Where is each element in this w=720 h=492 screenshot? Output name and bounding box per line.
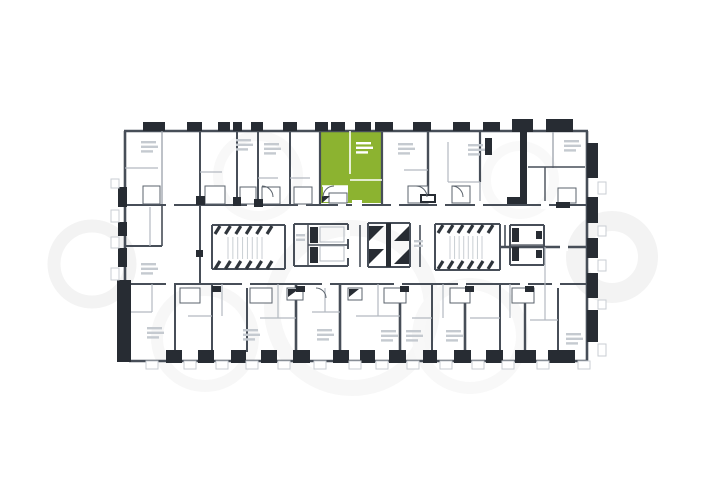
- unit-info-label: [468, 153, 480, 155]
- unit-info-label: [398, 148, 415, 150]
- fixture: [587, 143, 598, 178]
- fixture: [261, 350, 277, 363]
- fixture: [166, 280, 174, 288]
- 6: [438, 261, 443, 269]
- fixture: [598, 300, 606, 309]
- watermark-ring: [157, 290, 253, 386]
- fixture: [386, 223, 391, 267]
- fixture: [322, 280, 330, 288]
- fixture: [375, 122, 393, 131]
- fixture: [240, 187, 256, 204]
- fixture: [536, 250, 542, 258]
- fixture: [315, 122, 328, 131]
- unit-info-label: [147, 336, 159, 338]
- fixture: [118, 222, 127, 236]
- fixture: [598, 344, 606, 356]
- fixture: [512, 247, 519, 261]
- fixture: [310, 227, 318, 243]
- fixture: [278, 361, 290, 369]
- fixture: [212, 286, 221, 292]
- unit-info-label: [398, 152, 410, 154]
- fixture: [537, 361, 549, 369]
- fixture: [146, 361, 158, 369]
- unit-info-label: [564, 140, 579, 142]
- fixture: [320, 246, 344, 261]
- 6: [267, 261, 272, 269]
- 6: [458, 261, 463, 269]
- fixture: [475, 201, 483, 209]
- unit-info-label: [236, 144, 253, 146]
- fixture: [598, 260, 606, 271]
- 6: [267, 226, 272, 234]
- unit-info-label: [264, 143, 279, 145]
- unit-info-label: [141, 146, 158, 148]
- fixture: [251, 122, 263, 131]
- fixture: [111, 179, 119, 188]
- unit-info-label: [381, 339, 393, 341]
- fixture: [143, 122, 165, 131]
- fixture: [483, 122, 500, 131]
- unit-info-label: [141, 150, 153, 152]
- 6: [468, 261, 473, 269]
- 6: [215, 226, 220, 234]
- fixture: [143, 186, 160, 204]
- fixture: [546, 119, 573, 132]
- fixture: [118, 248, 127, 267]
- fixture: [512, 119, 533, 132]
- fixture: [587, 273, 598, 298]
- fixture: [578, 361, 590, 369]
- fixture: [536, 231, 542, 239]
- unit-info-label: [243, 338, 255, 340]
- 6: [448, 225, 453, 233]
- fixture: [598, 226, 606, 236]
- unit-info-label: [317, 334, 334, 336]
- 6: [478, 225, 483, 233]
- fixture: [187, 122, 202, 131]
- fixture: [233, 197, 241, 206]
- fixture: [196, 250, 203, 257]
- 6: [468, 225, 473, 233]
- fixture: [515, 350, 536, 363]
- unit-info-label: [564, 149, 576, 151]
- fixture: [242, 280, 250, 288]
- fixture: [111, 210, 119, 222]
- fixture: [205, 186, 225, 204]
- 6: [257, 226, 262, 234]
- unit-info-label: [446, 330, 461, 332]
- 6: [438, 225, 443, 233]
- unit-info-label: [468, 144, 483, 146]
- fixture: [558, 188, 576, 203]
- fixture: [376, 361, 388, 369]
- 6: [246, 261, 251, 269]
- fixture: [254, 199, 263, 207]
- unit-info-label: [141, 268, 158, 270]
- floor-plan-svg[interactable]: [0, 0, 720, 492]
- fixture: [346, 249, 350, 258]
- fixture: [422, 196, 434, 201]
- unit-info-label: [381, 330, 396, 332]
- fixture: [407, 361, 419, 369]
- fixture: [453, 122, 470, 131]
- fixture: [413, 122, 431, 131]
- 6: [246, 226, 251, 234]
- unit-info-label: [406, 330, 421, 332]
- unit-info-label: [317, 338, 329, 340]
- 6: [488, 225, 493, 233]
- unit-info-label: [356, 151, 368, 153]
- fixture: [231, 350, 246, 363]
- fixture: [166, 201, 174, 209]
- unit-info-label: [141, 141, 156, 143]
- fixture: [262, 187, 280, 204]
- fixture: [525, 286, 534, 292]
- fixture: [283, 122, 297, 131]
- unit-info-label: [468, 149, 485, 151]
- fixture: [454, 350, 471, 363]
- fixture: [216, 361, 228, 369]
- unit-info-label: [147, 327, 162, 329]
- fixture: [587, 238, 598, 258]
- unit-info-label: [141, 263, 156, 265]
- unit-info-label: [414, 245, 423, 247]
- unit-info-label: [264, 152, 276, 154]
- fixture: [541, 201, 549, 209]
- fixture: [437, 201, 445, 209]
- 6: [257, 261, 262, 269]
- fixture: [552, 280, 560, 288]
- unit-info-label: [243, 329, 258, 331]
- fixture: [117, 280, 131, 362]
- fixture: [452, 186, 470, 203]
- unit-info-label: [406, 335, 423, 337]
- unit-info-label: [414, 240, 423, 242]
- floorplan-viewer: [0, 0, 720, 492]
- fixture: [166, 350, 182, 363]
- fixture: [512, 228, 519, 242]
- 6: [236, 261, 241, 269]
- fixture: [329, 193, 347, 203]
- fixture: [233, 122, 242, 131]
- fixture: [440, 361, 452, 369]
- fixture: [111, 237, 119, 248]
- fixture: [556, 202, 570, 208]
- fixture: [502, 361, 514, 369]
- fixture: [218, 122, 230, 131]
- fixture: [472, 361, 484, 369]
- fixture: [331, 122, 345, 131]
- unit-info-label: [236, 148, 248, 150]
- fixture: [560, 243, 568, 251]
- layer-stair-treads: [228, 236, 482, 259]
- fixture: [598, 182, 606, 194]
- unit-info-label: [398, 143, 413, 145]
- fixture: [349, 361, 361, 369]
- fixture: [293, 350, 310, 363]
- fixture: [352, 200, 362, 208]
- fixture: [485, 138, 492, 155]
- fixture: [486, 350, 503, 363]
- fixture: [355, 122, 371, 131]
- unit-info-label: [446, 335, 463, 337]
- unit-info-label: [446, 339, 458, 341]
- fixture: [184, 361, 196, 369]
- fixture: [423, 350, 437, 363]
- 6: [236, 226, 241, 234]
- 6: [215, 261, 220, 269]
- unit-info-label: [147, 332, 164, 334]
- fixture: [294, 187, 312, 204]
- unit-info-label: [356, 147, 373, 149]
- fixture: [465, 286, 474, 292]
- fixture: [548, 350, 575, 363]
- fixture: [587, 197, 598, 223]
- fixture: [250, 288, 272, 303]
- unit-info-label: [566, 338, 583, 340]
- fixture: [196, 196, 205, 205]
- fixture: [587, 310, 598, 342]
- 6: [225, 261, 230, 269]
- unit-info-label: [296, 239, 305, 241]
- unit-info-label: [406, 339, 418, 341]
- 6: [225, 226, 230, 234]
- unit-info-label: [296, 234, 305, 236]
- fixture: [198, 350, 214, 363]
- unit-info-label: [564, 145, 581, 147]
- fixture: [111, 268, 119, 280]
- door-wedge: [369, 249, 384, 264]
- 6: [458, 225, 463, 233]
- unit-info-label: [381, 335, 398, 337]
- fixture: [346, 230, 350, 239]
- unit-info-label: [566, 333, 581, 335]
- unit-info-label: [264, 148, 281, 150]
- fixture: [389, 350, 406, 363]
- fixture: [180, 288, 200, 303]
- fixture: [391, 201, 399, 209]
- 6: [488, 261, 493, 269]
- fixture: [314, 361, 326, 369]
- fixture: [520, 131, 527, 204]
- fixture: [400, 286, 409, 292]
- unit-info-label: [243, 334, 260, 336]
- fixture: [333, 350, 349, 363]
- unit-info-label: [236, 139, 251, 141]
- 6: [478, 261, 483, 269]
- unit-info-label: [566, 342, 578, 344]
- unit-info-label: [356, 142, 371, 144]
- fixture: [246, 361, 258, 369]
- unit-info-label: [141, 272, 153, 274]
- fixture: [310, 247, 318, 263]
- fixture: [118, 187, 127, 207]
- fixture: [360, 350, 375, 363]
- fixture: [458, 280, 466, 288]
- unit-info-label: [317, 329, 332, 331]
- 6: [448, 261, 453, 269]
